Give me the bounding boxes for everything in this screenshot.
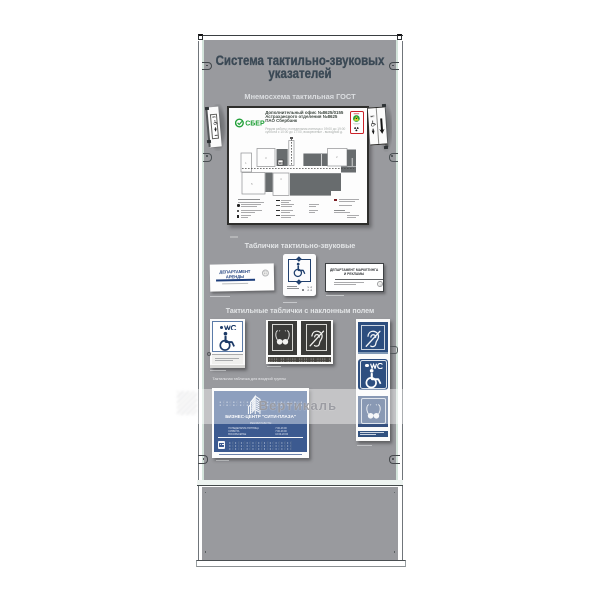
svg-text:WC: WC [279,161,283,165]
svg-text:СБЕР: СБЕР [245,120,265,127]
